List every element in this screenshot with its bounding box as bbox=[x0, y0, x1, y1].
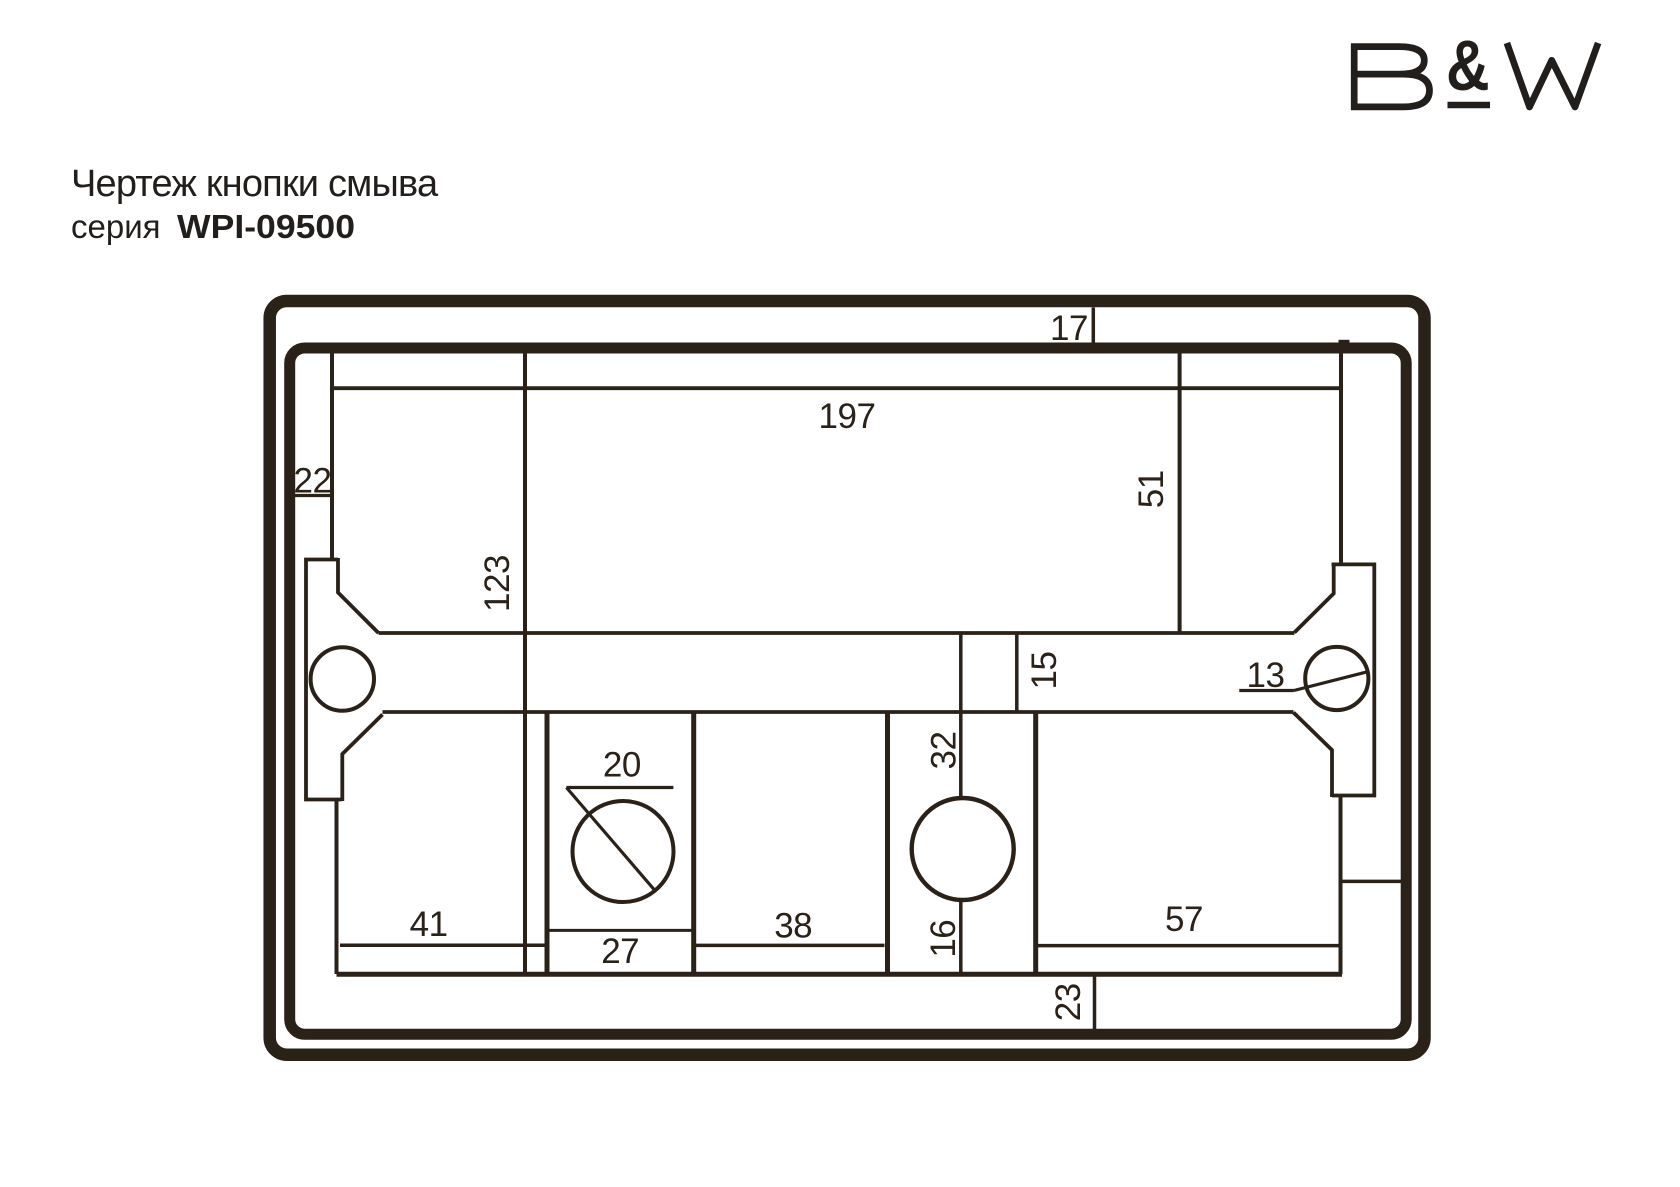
svg-text:197: 197 bbox=[819, 397, 876, 436]
svg-text:13: 13 bbox=[1247, 656, 1285, 695]
svg-text:23: 23 bbox=[1049, 983, 1088, 1021]
svg-text:серия: серия bbox=[71, 208, 161, 245]
svg-text:16: 16 bbox=[924, 920, 963, 958]
svg-text:123: 123 bbox=[478, 555, 517, 612]
svg-text:&: & bbox=[1446, 26, 1490, 106]
svg-text:20: 20 bbox=[603, 745, 641, 784]
svg-text:38: 38 bbox=[774, 906, 812, 945]
svg-text:57: 57 bbox=[1165, 900, 1203, 939]
svg-text:Чертеж кнопки смыва: Чертеж кнопки смыва bbox=[71, 163, 439, 205]
svg-text:27: 27 bbox=[601, 932, 639, 971]
svg-text:WPI-09500: WPI-09500 bbox=[177, 208, 355, 245]
svg-text:22: 22 bbox=[294, 462, 332, 501]
svg-text:17: 17 bbox=[1050, 309, 1088, 348]
svg-text:32: 32 bbox=[924, 732, 963, 770]
svg-text:41: 41 bbox=[410, 905, 448, 944]
svg-text:15: 15 bbox=[1025, 652, 1064, 690]
svg-text:51: 51 bbox=[1132, 470, 1171, 508]
